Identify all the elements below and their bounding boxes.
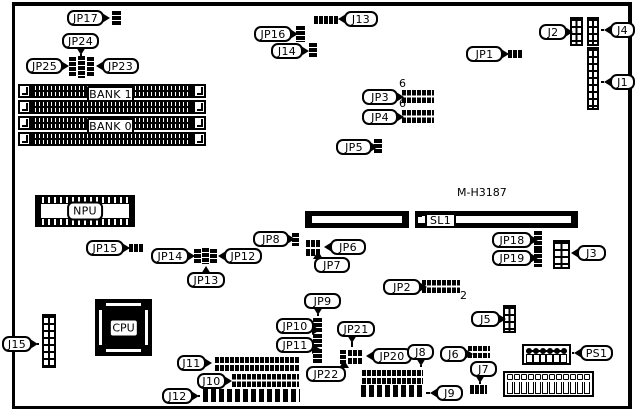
jumper-jp25 (69, 57, 76, 77)
simm-socket-4 (31, 132, 193, 146)
callout-jp18: JP18 (492, 232, 532, 248)
power-strip-socket (542, 382, 548, 394)
block-jp2 (422, 280, 460, 293)
power-strip-pin (507, 374, 513, 380)
callout-j1: J1 (610, 74, 635, 90)
callout-jp22: JP22 (306, 366, 346, 382)
jumper-jp15 (129, 244, 143, 252)
callout-j13: J13 (344, 11, 378, 27)
simm-socket-2-pins-top (35, 102, 189, 106)
jumper-jp24 (78, 56, 85, 78)
simm-clip-left-3 (18, 116, 31, 130)
callout-jp9-leader (317, 314, 319, 316)
ps1-pin (554, 348, 560, 354)
callout-jp4: JP4 (362, 109, 398, 125)
simm-socket-4-pins-top (35, 134, 189, 138)
power-strip-socket-row (507, 382, 590, 394)
power-strip-socket (521, 382, 527, 394)
callout-jp24: JP24 (62, 33, 99, 49)
jumper-j7 (470, 385, 487, 394)
connector-j13 (314, 16, 339, 24)
power-strip-socket (584, 382, 590, 394)
ps1-socket-row (526, 354, 567, 362)
simm-socket-4-pins-bottom (35, 140, 189, 144)
callout-j7-leader (479, 382, 481, 384)
simm-clip-right-3 (193, 116, 206, 130)
power-strip-pin (570, 374, 576, 380)
simm-clip-left-2 (18, 100, 31, 114)
cpu-corner (141, 345, 150, 354)
callout-jp2: JP2 (383, 279, 421, 295)
callout-jp14: JP14 (151, 248, 189, 264)
callout-j2: J2 (539, 24, 567, 40)
connector-j8 (362, 370, 423, 384)
callout-j3: J3 (577, 245, 606, 261)
connector-j15 (42, 314, 56, 368)
callout-j11: J11 (177, 355, 206, 371)
power-strip-socket (570, 382, 576, 394)
label-bank1: BANK 1 (87, 86, 134, 102)
callout-jp6: JP6 (330, 239, 366, 255)
power-strip-pin (549, 374, 555, 380)
power-strip-pin (577, 374, 583, 380)
callout-j8-leader (420, 365, 422, 367)
callout-jp12: JP12 (224, 248, 262, 264)
callout-j6: J6 (440, 346, 467, 362)
connector-ps1 (522, 344, 571, 365)
power-strip-pin (584, 374, 590, 380)
ps1-socket (560, 354, 567, 363)
jumper-jp1 (508, 50, 523, 58)
jumper-jp23 (87, 57, 94, 77)
npu-socket: NPU (35, 195, 135, 227)
callout-jp9: JP9 (304, 293, 341, 309)
block-jp4 (402, 110, 434, 123)
callout-j8: J8 (407, 344, 434, 360)
power-strip-pin (542, 374, 548, 380)
callout-j10: J10 (197, 373, 226, 389)
simm-clip-left-1 (18, 84, 31, 98)
ps1-pin-row (526, 347, 567, 354)
connector-j11 (215, 357, 300, 371)
power-strip-pin (563, 374, 569, 380)
power-strip-pin-row (507, 374, 590, 380)
ps1-pin (533, 348, 539, 354)
cpu-corner (141, 301, 150, 310)
ps1-socket (546, 354, 553, 363)
ps1-socket (553, 354, 560, 363)
callout-j9: J9 (436, 385, 463, 401)
power-strip-pin (514, 374, 520, 380)
callout-jp15: JP15 (86, 240, 124, 256)
cpu-corner (97, 301, 106, 310)
connector-j3 (553, 240, 570, 269)
callout-jp16: JP16 (254, 26, 292, 42)
jumper-jp14 (194, 249, 201, 263)
jumper-jp17 (112, 11, 121, 26)
callout-jp3: JP3 (362, 89, 398, 105)
label-bank0: BANK 0 (87, 118, 134, 134)
motherboard-diagram: JP17JP24JP25JP23BANK 1BANK 0JP16J13J14J2… (0, 0, 638, 415)
callout-jp11: JP11 (276, 337, 314, 353)
callout-jp24-leader (80, 54, 82, 56)
pin2-jp2: 2 (460, 290, 470, 302)
simm-socket-2-pins-bottom (35, 108, 189, 112)
power-strip-pin (528, 374, 534, 380)
callout-j12: J12 (162, 388, 193, 404)
callout-ps1-leader (572, 352, 574, 354)
power-strip-pin (556, 374, 562, 380)
power-strip-socket (507, 382, 513, 394)
simm-clip-right-2 (193, 100, 206, 114)
power-strip-socket (577, 382, 583, 394)
sl1-pin (418, 217, 424, 223)
power-strip-socket (563, 382, 569, 394)
callout-jp19: JP19 (492, 250, 532, 266)
callout-j14: J14 (271, 43, 303, 59)
ps1-socket (526, 354, 533, 363)
label-sl1: SL1 (425, 213, 456, 228)
power-strip-socket (528, 382, 534, 394)
connector-power-strip (503, 371, 594, 397)
callout-j5: J5 (471, 311, 500, 327)
ps1-socket (533, 354, 540, 363)
callout-jp20: JP20 (372, 348, 412, 364)
callout-j4-leader (601, 29, 604, 31)
callout-jp17: JP17 (67, 10, 104, 26)
pin6-jp3: 6 (399, 78, 409, 90)
simm-clip-right-4 (193, 132, 206, 146)
power-strip-socket (535, 382, 541, 394)
cpu-corner (97, 345, 106, 354)
jumper-jp13 (202, 248, 209, 264)
callout-jp21-leader (351, 342, 353, 347)
callout-jp5: JP5 (336, 139, 372, 155)
callout-jp7: JP7 (314, 257, 350, 273)
callout-jp8: JP8 (253, 231, 289, 247)
simm-clip-left-4 (18, 132, 31, 146)
ps1-pin (526, 348, 532, 354)
power-strip-socket (514, 382, 520, 394)
callout-j4: J4 (610, 22, 635, 38)
connector-j12 (203, 389, 300, 402)
callout-j9-leader (426, 392, 430, 394)
simm-clip-right-1 (193, 84, 206, 98)
connector-j4 (587, 17, 599, 46)
power-strip-socket (556, 382, 562, 394)
slot-a (305, 211, 409, 228)
callout-j15: J15 (2, 336, 32, 352)
callout-j15-leader (37, 343, 39, 345)
connector-j9 (361, 385, 423, 397)
npu-label: NPU (67, 202, 103, 221)
power-strip-pin (521, 374, 527, 380)
power-strip-pin (535, 374, 541, 380)
callout-jp25: JP25 (26, 58, 63, 74)
connector-j1 (587, 47, 599, 110)
callout-jp1: JP1 (466, 46, 503, 62)
simm-socket-2 (31, 100, 193, 114)
callout-j1-leader (601, 81, 604, 83)
ps1-socket (540, 354, 547, 363)
board-model-text: M-H3187 (457, 187, 519, 200)
callout-ps1: PS1 (580, 345, 613, 361)
callout-j7: J7 (470, 361, 497, 377)
ps1-pin (561, 348, 567, 354)
jumper-jp12 (210, 249, 217, 263)
callout-jp21: JP21 (337, 321, 375, 337)
cpu-socket: CPU (95, 299, 152, 356)
power-strip-socket (549, 382, 555, 394)
jumper-j14 (309, 43, 317, 58)
callout-jp23: JP23 (102, 58, 139, 74)
callout-j12-leader (198, 395, 200, 397)
connector-j10 (232, 374, 299, 387)
ps1-pin (540, 348, 546, 354)
cpu-label: CPU (110, 320, 136, 335)
ps1-pin (547, 348, 553, 354)
callout-jp13: JP13 (187, 272, 225, 288)
block-jp21 (348, 350, 363, 364)
callout-jp10: JP10 (276, 318, 314, 334)
